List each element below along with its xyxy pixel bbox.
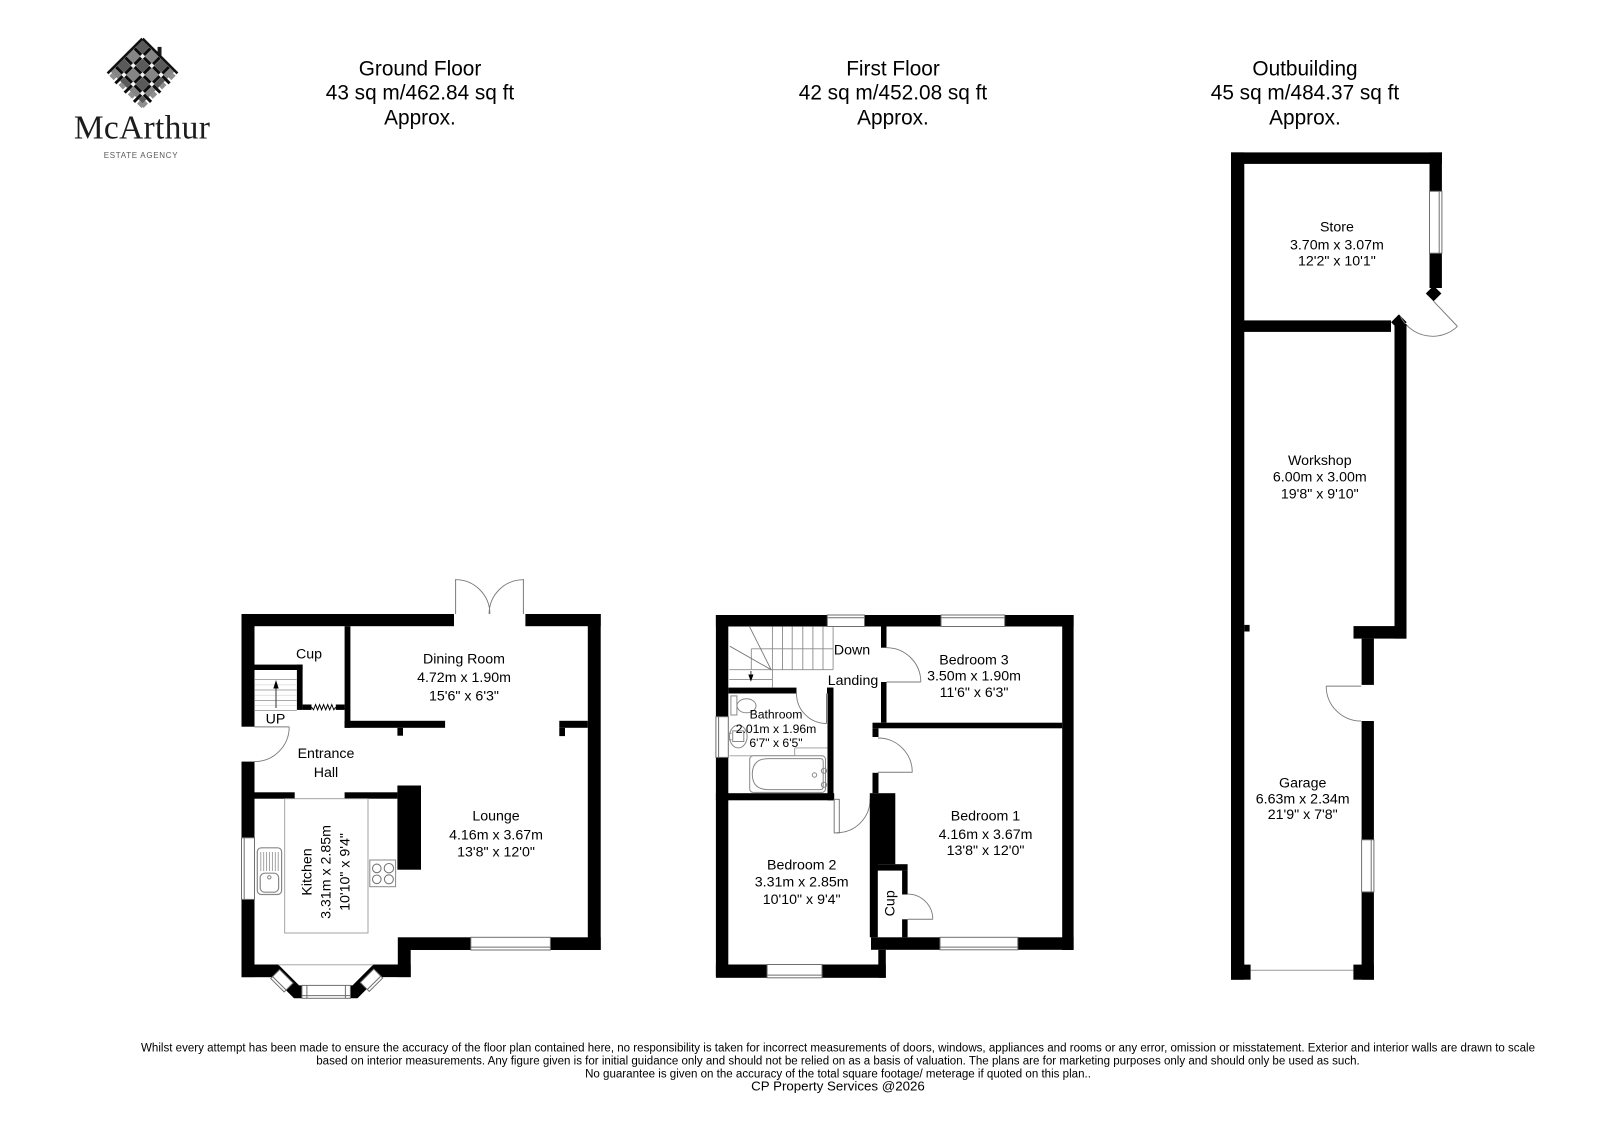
svg-text:Dining Room: Dining Room <box>423 652 505 668</box>
svg-text:Bedroom 1: Bedroom 1 <box>951 809 1021 825</box>
svg-text:Store: Store <box>1320 220 1354 236</box>
svg-text:19'8" x 9'10": 19'8" x 9'10" <box>1281 487 1359 503</box>
svg-text:Down: Down <box>834 643 870 659</box>
svg-text:43 sq m/462.84 sq ft: 43 sq m/462.84 sq ft <box>326 82 515 105</box>
svg-text:10'10" x 9'4": 10'10" x 9'4" <box>338 833 354 911</box>
svg-text:Cup: Cup <box>882 890 898 916</box>
svg-text:Outbuilding: Outbuilding <box>1252 58 1357 81</box>
svg-text:6'7" x 6'5": 6'7" x 6'5" <box>749 736 802 750</box>
svg-text:6.00m x 3.00m: 6.00m x 3.00m <box>1273 470 1367 486</box>
svg-text:45 sq m/484.37 sq ft: 45 sq m/484.37 sq ft <box>1211 82 1400 105</box>
svg-text:13'8" x 12'0": 13'8" x 12'0" <box>947 843 1025 859</box>
svg-text:Entrance: Entrance <box>298 746 355 762</box>
svg-text:3.70m x 3.07m: 3.70m x 3.07m <box>1290 237 1384 253</box>
svg-text:Lounge: Lounge <box>472 809 519 825</box>
svg-text:12'2" x 10'1": 12'2" x 10'1" <box>1298 253 1376 269</box>
svg-text:Hall: Hall <box>314 765 338 781</box>
svg-text:3.50m x 1.90m: 3.50m x 1.90m <box>927 669 1021 685</box>
svg-text:Bedroom 3: Bedroom 3 <box>939 653 1009 669</box>
svg-text:Bathroom: Bathroom <box>750 707 803 721</box>
svg-text:3.31m x 2.85m: 3.31m x 2.85m <box>319 825 335 919</box>
svg-text:UP: UP <box>266 712 286 728</box>
svg-text:Kitchen: Kitchen <box>300 848 316 895</box>
svg-text:4.16m x 3.67m: 4.16m x 3.67m <box>939 827 1033 843</box>
svg-text:based on interior measurements: based on interior measurements. Any figu… <box>316 1056 1360 1068</box>
svg-text:Landing: Landing <box>828 673 879 689</box>
svg-text:Ground Floor: Ground Floor <box>359 58 482 81</box>
svg-text:2.01m x 1.96m: 2.01m x 1.96m <box>736 722 817 736</box>
svg-text:Whilst every attempt has been: Whilst every attempt has been made to en… <box>141 1043 1535 1055</box>
svg-text:11'6" x 6'3": 11'6" x 6'3" <box>940 685 1009 701</box>
svg-text:Approx.: Approx. <box>857 107 929 130</box>
svg-text:3.31m x 2.85m: 3.31m x 2.85m <box>755 875 849 891</box>
svg-text:ESTATE AGENCY: ESTATE AGENCY <box>104 151 179 160</box>
svg-text:CP Property Services @2026: CP Property Services @2026 <box>751 1079 925 1094</box>
svg-text:4.72m x 1.90m: 4.72m x 1.90m <box>417 670 511 686</box>
svg-text:13'8" x 12'0": 13'8" x 12'0" <box>457 845 535 861</box>
svg-text:Cup: Cup <box>296 647 322 663</box>
svg-text:Bedroom 2: Bedroom 2 <box>767 858 837 874</box>
svg-text:McArthur: McArthur <box>74 110 210 147</box>
svg-text:10'10" x 9'4": 10'10" x 9'4" <box>763 892 841 908</box>
svg-text:15'6" x 6'3": 15'6" x 6'3" <box>429 689 499 705</box>
svg-text:42 sq m/452.08 sq ft: 42 sq m/452.08 sq ft <box>799 82 988 105</box>
svg-text:Approx.: Approx. <box>384 107 456 130</box>
svg-text:4.16m x 3.67m: 4.16m x 3.67m <box>449 828 543 844</box>
svg-text:Approx.: Approx. <box>1269 107 1341 130</box>
svg-text:Workshop: Workshop <box>1288 453 1352 469</box>
svg-text:First Floor: First Floor <box>846 58 940 81</box>
svg-text:6.63m x 2.34m: 6.63m x 2.34m <box>1256 791 1350 807</box>
svg-text:Garage: Garage <box>1279 776 1326 792</box>
svg-text:21'9" x 7'8": 21'9" x 7'8" <box>1268 807 1338 823</box>
